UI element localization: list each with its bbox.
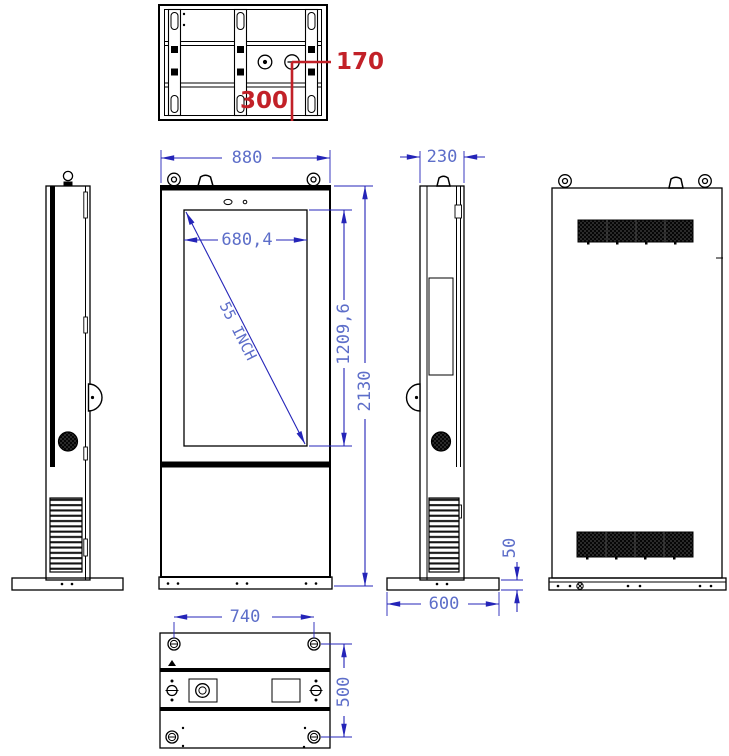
antenna (669, 177, 683, 188)
antenna (198, 175, 213, 186)
mounting-rail (169, 10, 181, 116)
lifting-eyebolt (63, 171, 72, 186)
air-vent-louver (429, 498, 459, 572)
anchor-bolt-hole (166, 731, 178, 743)
dim-front-width-group: 880 (161, 148, 330, 183)
anchor-bolt-hole (168, 638, 180, 650)
dim-top-hole-offset-x: 170 (336, 49, 384, 75)
dim-base-height: 50 (500, 538, 520, 558)
dim-display-diagonal: 55 INCH (216, 299, 261, 364)
bottom-middle-band (166, 679, 323, 702)
slot-screw (166, 686, 179, 696)
hinge-slot (84, 317, 88, 333)
dim-display-height-group: 1209,6 (309, 210, 354, 446)
hinge-slot (84, 539, 88, 556)
camera-hole (243, 200, 247, 204)
side-access-panel (429, 278, 453, 375)
door-lock (407, 384, 421, 411)
speaker-grille (59, 432, 78, 451)
screw-dot (183, 13, 185, 15)
dim-overall-height: 2130 (355, 371, 375, 412)
dim-base-depth: 600 (429, 594, 460, 614)
hinge-slot (455, 205, 462, 218)
cabinet-divider (161, 462, 330, 468)
dim-overall-height-group: 2130 (334, 186, 375, 586)
technical-drawing-page: 170 300 880 680,4 55 INCH (0, 0, 729, 756)
front-base-plate (159, 577, 332, 589)
hinge-slot (84, 447, 88, 460)
front-door-edge (50, 186, 55, 467)
dim-base-height-group: 50 (500, 538, 523, 612)
technical-drawing: 170 300 880 680,4 55 INCH (0, 0, 729, 756)
hinge-slot (84, 192, 88, 218)
dim-base-depth-group: 600 (387, 592, 499, 616)
dim-side-depth: 230 (427, 147, 458, 167)
back-cabinet (552, 188, 722, 578)
cable-gland-hole (258, 55, 272, 69)
slot-screw (310, 686, 323, 696)
front-view: 880 680,4 55 INCH 1209,6 2130 (159, 148, 375, 589)
dim-bolt-span-depth-group: 500 (321, 644, 354, 737)
ground-screw (577, 583, 583, 589)
screw-dot (183, 24, 185, 26)
dim-bolt-span-depth: 500 (334, 677, 354, 708)
speaker-grille (432, 432, 451, 451)
access-cutout (272, 679, 300, 702)
bottom-view: 740 500 (160, 607, 354, 748)
cable-entry-plate (189, 679, 217, 702)
back-base-plate (549, 578, 726, 590)
ventilation-grille (577, 532, 693, 560)
dim-front-width: 880 (232, 148, 263, 168)
lifting-eyebolt (699, 175, 712, 188)
anchor-bolt-hole (308, 638, 320, 650)
top-view: 170 300 (159, 5, 384, 121)
anchor-bolt-hole (308, 731, 320, 743)
back-view (549, 175, 726, 590)
door-lock (89, 384, 103, 411)
lifting-eyebolt (559, 175, 572, 188)
dim-display-width: 680,4 (221, 230, 272, 250)
antenna (437, 176, 450, 186)
air-vent-louver (50, 498, 82, 572)
orientation-marker (168, 660, 176, 666)
dim-top-hole-offset-y: 300 (240, 88, 288, 114)
ventilation-grille (578, 220, 693, 245)
dim-display-height: 1209,6 (334, 303, 354, 364)
dim-bolt-span-width: 740 (230, 607, 261, 627)
lifting-eyebolt (168, 173, 181, 186)
sensor-hole (224, 199, 232, 204)
side-view-right: 230 50 600 (387, 147, 523, 616)
side-view-left (12, 171, 123, 590)
lifting-eyebolt (307, 173, 320, 186)
dim-display-width-group: 680,4 (184, 230, 307, 250)
